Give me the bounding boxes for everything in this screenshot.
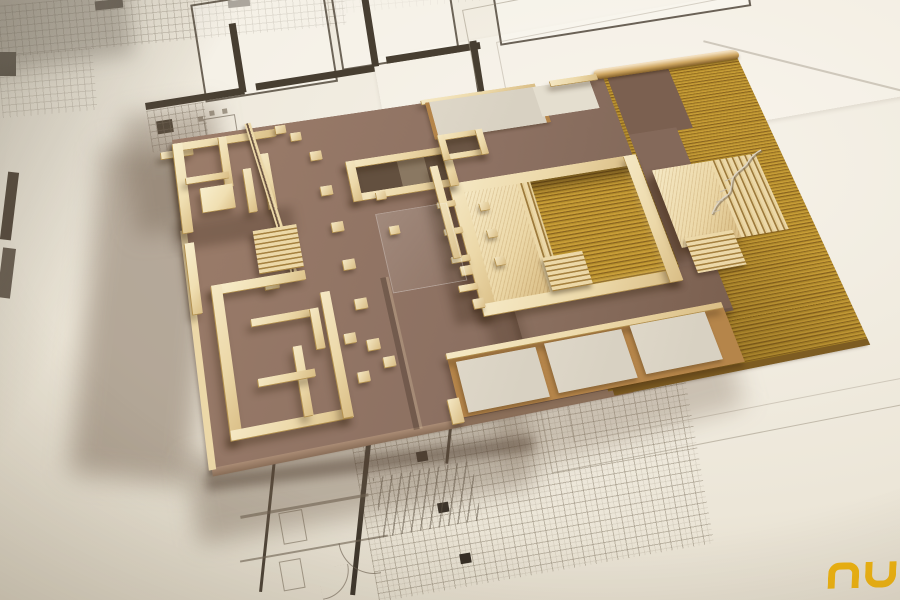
- balsa-post: [310, 150, 323, 160]
- balsa-post: [342, 258, 356, 270]
- plan-column-square: [459, 553, 472, 565]
- plan-chair-dot: [198, 116, 204, 122]
- deck-post: [479, 201, 491, 210]
- plan-column-square: [416, 450, 429, 462]
- balsa-post: [383, 355, 397, 367]
- balsa-post: [357, 370, 371, 382]
- balsa-post: [275, 125, 287, 134]
- plan-chair-dot: [222, 108, 228, 114]
- balsa-post: [320, 185, 333, 196]
- interior-stairs: [253, 224, 304, 274]
- balsa-post: [354, 297, 368, 309]
- plan-chair-dot: [209, 110, 215, 116]
- plan-furniture: [278, 509, 307, 545]
- logo-glyph-u: [865, 561, 897, 588]
- plan-wall-thin: [240, 493, 369, 519]
- balsa-post: [290, 132, 302, 141]
- balsa-post: [472, 297, 485, 308]
- balsa-post: [331, 221, 345, 232]
- photo-architectural-model: [0, 0, 900, 600]
- balsa-post: [344, 332, 357, 344]
- plan-furniture: [279, 558, 306, 591]
- watermark-logo: [827, 561, 896, 593]
- plan-dark-wall-fragment: [0, 247, 16, 298]
- plan-door-arc: [318, 564, 354, 600]
- balsa-post: [376, 191, 387, 200]
- balsa-post: [367, 338, 382, 351]
- balsa-block: [200, 183, 236, 212]
- deck-post: [494, 256, 506, 266]
- deck-post: [487, 228, 499, 238]
- plan-wall: [259, 457, 276, 592]
- plan-dark-wall-fragment: [0, 172, 19, 241]
- balsa-post: [389, 225, 401, 235]
- logo-glyph-n: [828, 562, 860, 589]
